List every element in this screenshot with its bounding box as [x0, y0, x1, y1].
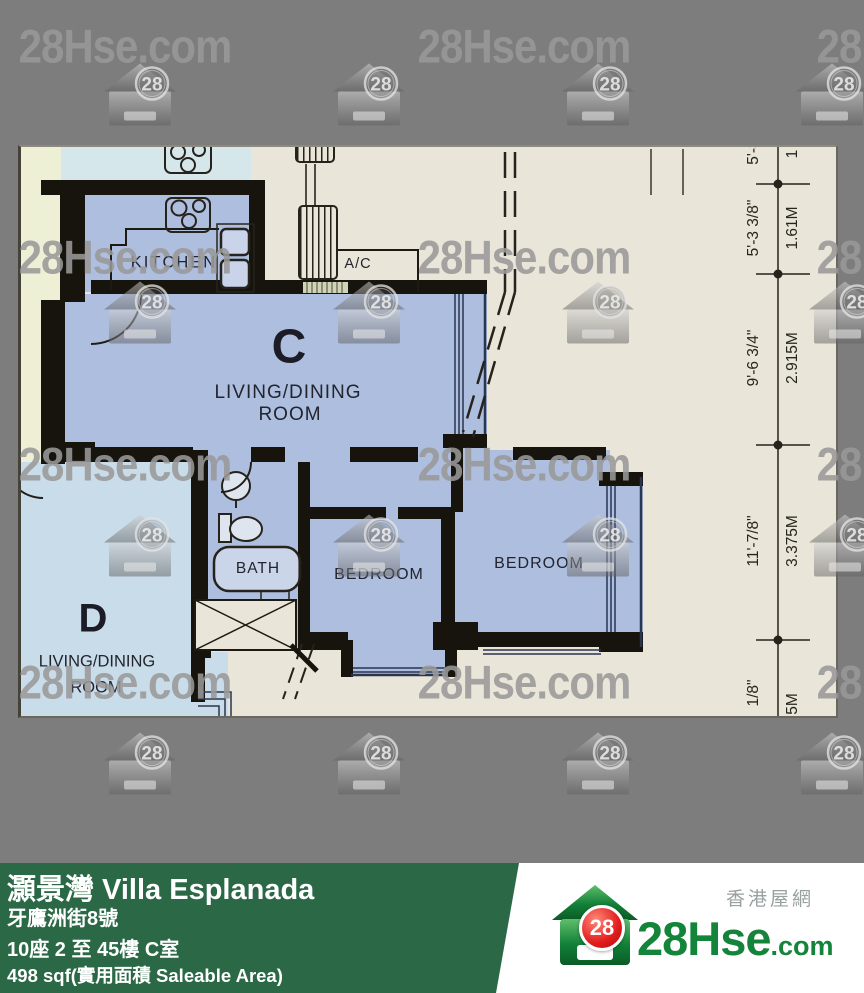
unit-d-living-label: LIVING/DINING — [39, 653, 155, 672]
ac-louvre-icon — [298, 205, 338, 280]
brand-name: 28Hse.com — [637, 911, 834, 966]
unit-d-label: D — [79, 597, 108, 642]
dim-seg0-metric: 1 — [784, 145, 802, 174]
ac-louvre-icon — [295, 145, 335, 163]
dim-seg3-metric: 3.375M — [784, 496, 802, 586]
living-dining-label2: ROOM — [258, 404, 321, 426]
floorplan-linework — [21, 147, 838, 718]
dim-seg4-imperial: 1/8" — [745, 663, 763, 718]
28hse-house-watermark-icon: 28 — [560, 62, 636, 133]
floorplan-page: KITCHEN A/C C LIVING/DINING ROOM BATH BE… — [0, 0, 864, 993]
dim-seg1-imperial: 5'-3 3/8" — [745, 173, 763, 283]
28hse-house-watermark-icon: 28 — [560, 731, 636, 802]
ac-label: A/C — [344, 256, 371, 272]
bath-label: BATH — [236, 560, 280, 578]
badge-number: 28 — [590, 915, 614, 941]
unit-d-living-label2: ROOM — [70, 679, 121, 698]
watermark-text: 28Hse.com — [19, 20, 232, 74]
dim-seg3-imperial: 11'-7/8" — [745, 481, 763, 601]
28hse-house-watermark-icon: 28 — [794, 62, 864, 133]
svg-text:28: 28 — [141, 744, 162, 765]
watermark-text: 28Hse.com — [817, 20, 864, 74]
svg-text:28: 28 — [599, 744, 620, 765]
kitchen-label: KITCHEN — [131, 254, 217, 273]
svg-text:28: 28 — [833, 744, 854, 765]
svg-text:28: 28 — [833, 75, 854, 96]
28hse-house-watermark-icon: 28 — [102, 62, 178, 133]
28hse-house-watermark-icon: 28 — [331, 731, 407, 802]
property-info-panel: 灝景灣 Villa Esplanada 牙鷹洲街8號 10座 2 至 45樓 C… — [0, 863, 530, 993]
28hse-house-watermark-icon: 28 — [794, 731, 864, 802]
logo-badge-28: 28 — [579, 905, 625, 951]
dim-seg4-metric: 5M — [784, 684, 802, 718]
brand-name-main: 28Hse — [637, 912, 771, 965]
28hse-house-watermark-icon: 28 — [102, 731, 178, 802]
svg-text:28: 28 — [599, 75, 620, 96]
svg-text:28: 28 — [370, 75, 391, 96]
watermark-text: 28Hse.com — [418, 20, 631, 74]
bedroom1-label: BEDROOM — [334, 566, 424, 584]
unit-c-label: C — [272, 320, 307, 375]
svg-text:28: 28 — [141, 75, 162, 96]
bedroom2-label: BEDROOM — [494, 555, 584, 573]
dim-seg2-imperial: 9'-6 3/4" — [745, 298, 763, 418]
brand-chinese-name: 香港屋網 — [726, 884, 814, 911]
floorplan-image: KITCHEN A/C C LIVING/DINING ROOM BATH BE… — [18, 145, 838, 718]
svg-text:28: 28 — [846, 293, 864, 314]
shaft-icon — [195, 600, 296, 650]
address: 牙鷹洲街8號 — [7, 902, 118, 931]
svg-text:28: 28 — [846, 526, 864, 547]
28hse-house-watermark-icon: 28 — [331, 62, 407, 133]
kitchen-sink-icon — [217, 224, 254, 292]
dim-seg1-metric: 1.61M — [784, 188, 802, 268]
saleable-area: 498 sqf(實用面積 Saleable Area) — [7, 962, 283, 988]
living-dining-label: LIVING/DINING — [214, 382, 361, 404]
block-floor-flat: 10座 2 至 45樓 C室 — [7, 933, 179, 962]
footer-bar: 香港屋網 28 28Hse.com — [0, 863, 864, 993]
dim-seg2-metric: 2.915M — [784, 313, 802, 403]
brand-name-suffix: .com — [771, 931, 834, 961]
svg-text:28: 28 — [370, 744, 391, 765]
